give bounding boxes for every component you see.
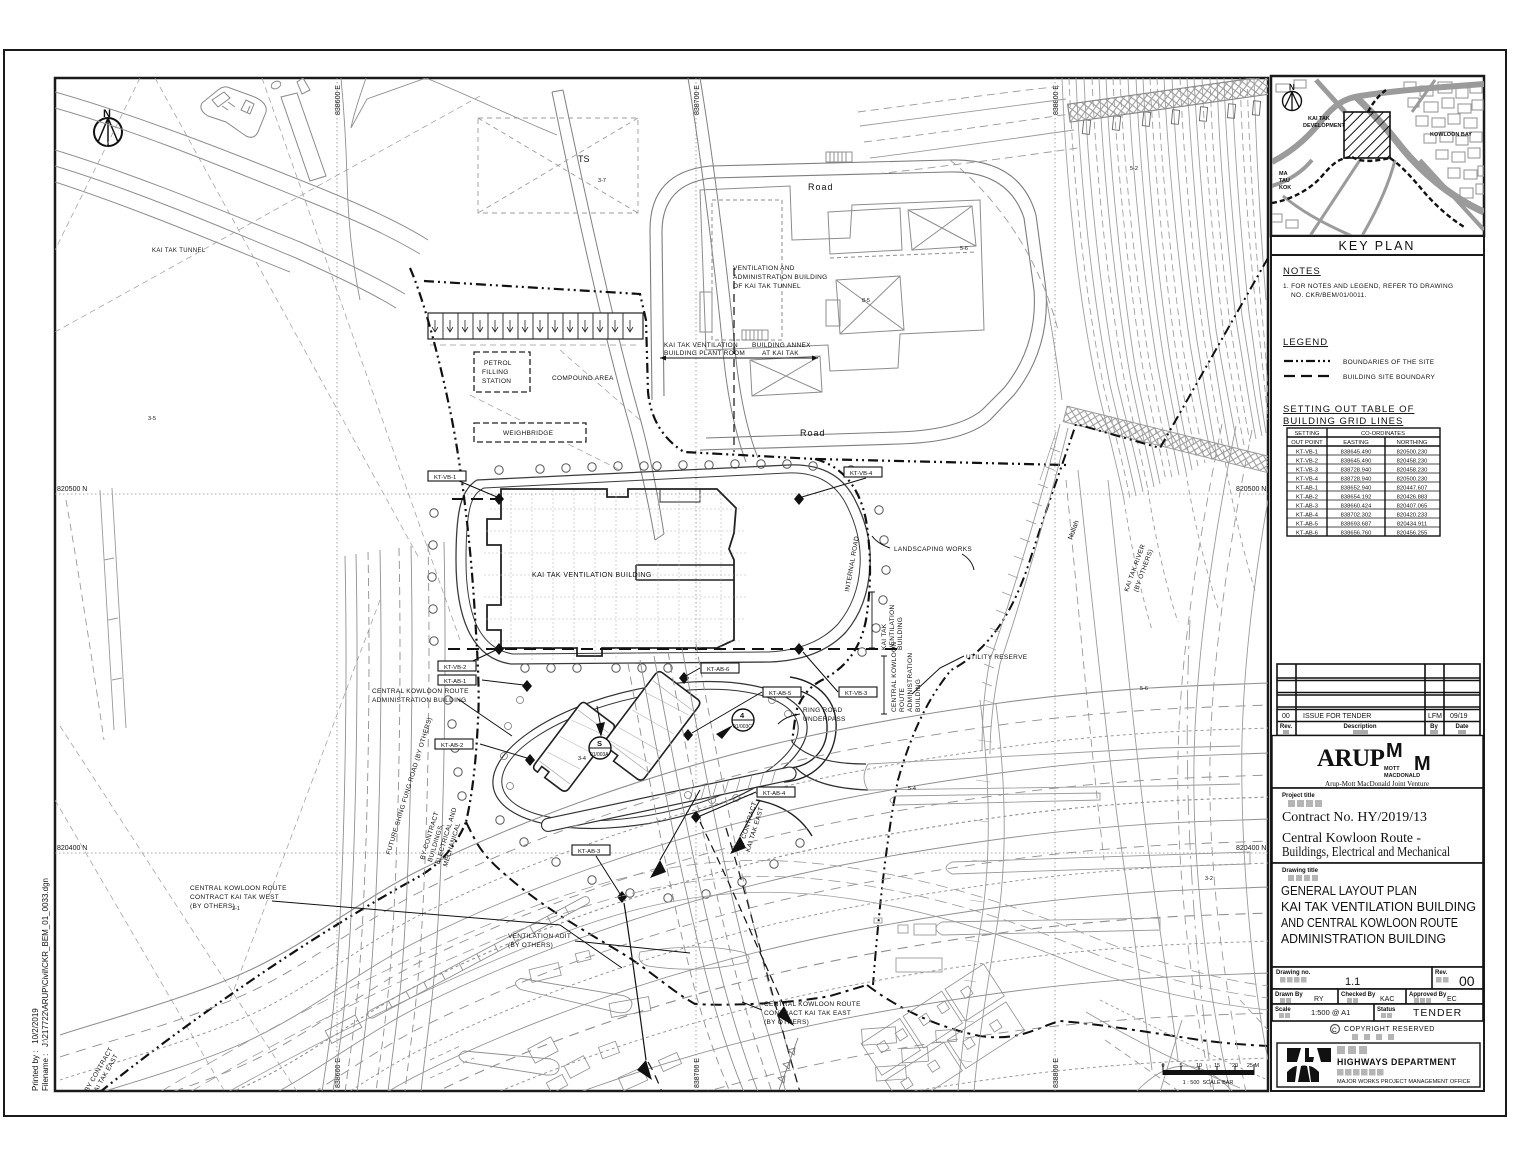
svg-text:KT-VB-4: KT-VB-4 [1296, 477, 1319, 483]
svg-text:01/003C: 01/003C [733, 724, 752, 730]
svg-text:CENTRAL KOWLOON ROUTE: CENTRAL KOWLOON ROUTE [764, 1001, 861, 1008]
svg-text:(BY OTHERS): (BY OTHERS) [508, 942, 553, 949]
svg-text:838728.940: 838728.940 [1341, 477, 1372, 483]
svg-text:VENTILATION AND: VENTILATION AND [733, 265, 795, 272]
svg-text:Rev.: Rev. [1435, 970, 1448, 976]
svg-text:Printed by : 10/2/2019: Printed by : 10/2/2019 [31, 1008, 40, 1091]
svg-text:RY: RY [1314, 996, 1324, 1003]
svg-text:CONTRACT KAI TAK WEST: CONTRACT KAI TAK WEST [190, 894, 279, 901]
svg-text:FILLING: FILLING [482, 369, 509, 376]
svg-text:1:500 @ A1: 1:500 @ A1 [1311, 1008, 1350, 1017]
svg-text:CO-ORDINATES: CO-ORDINATES [1361, 431, 1405, 437]
svg-text:KT-AB-1: KT-AB-1 [1296, 486, 1318, 492]
svg-text:TS: TS [578, 154, 590, 164]
svg-text:SETTING OUT TABLE OF: SETTING OUT TABLE OF [1283, 404, 1414, 415]
svg-text:Buildings, Electrical and Mech: Buildings, Electrical and Mechanical [1282, 844, 1450, 859]
svg-text:BUILDING: BUILDING [915, 679, 922, 712]
svg-text:820407.065: 820407.065 [1397, 504, 1428, 510]
svg-text:KT-VB-2: KT-VB-2 [444, 665, 466, 671]
svg-text:COMPOUND AREA: COMPOUND AREA [552, 375, 614, 382]
svg-text:OF KAI TAK TUNNEL: OF KAI TAK TUNNEL [733, 283, 801, 290]
svg-text:KT-AB-6: KT-AB-6 [707, 667, 730, 673]
svg-text:KT-AB-2: KT-AB-2 [1296, 495, 1318, 501]
svg-text:PETROL: PETROL [484, 360, 512, 367]
svg-text:KAI TAK VENTILATION BUILDING: KAI TAK VENTILATION BUILDING [1281, 900, 1476, 914]
svg-text:KAC: KAC [1380, 996, 1394, 1003]
svg-text:820458.230: 820458.230 [1397, 459, 1428, 465]
svg-text:09/19: 09/19 [1450, 713, 1468, 720]
svg-text:CENTRAL KOWLOON: CENTRAL KOWLOON [891, 642, 898, 712]
svg-text:GENERAL LAYOUT PLAN: GENERAL LAYOUT PLAN [1281, 884, 1417, 898]
svg-text:820500.230: 820500.230 [1397, 477, 1428, 483]
svg-text:KT-AB-5: KT-AB-5 [1296, 522, 1318, 528]
svg-text:820500.230: 820500.230 [1397, 450, 1428, 456]
svg-text:BOUNDARIES OF THE SITE: BOUNDARIES OF THE SITE [1343, 359, 1435, 366]
svg-text:(BY OTHERS): (BY OTHERS) [764, 1019, 809, 1026]
svg-text:KT-AB-3: KT-AB-3 [578, 849, 601, 855]
svg-text:LEGEND: LEGEND [1283, 337, 1328, 348]
svg-text:ROUTE: ROUTE [899, 687, 906, 712]
svg-text:KT-AB-2: KT-AB-2 [441, 743, 463, 749]
svg-text:Checked By: Checked By [1341, 992, 1376, 998]
svg-text:1.1: 1.1 [1345, 976, 1360, 988]
svg-text:N: N [103, 108, 111, 120]
svg-text:C: C [1332, 1027, 1337, 1034]
svg-text:KT-VB-2: KT-VB-2 [1296, 459, 1318, 465]
svg-text:Drawing title: Drawing title [1282, 868, 1319, 874]
svg-text:5-6: 5-6 [1140, 686, 1148, 692]
svg-text:AT KAI TAK: AT KAI TAK [762, 350, 799, 357]
svg-text:ADMINISTRATION BUILDING: ADMINISTRATION BUILDING [733, 274, 828, 281]
svg-text:838728.940: 838728.940 [1341, 468, 1372, 474]
svg-text:KAI TAK: KAI TAK [881, 623, 888, 650]
svg-text:MA: MA [1279, 171, 1288, 177]
svg-text:8-5: 8-5 [862, 298, 870, 304]
svg-text:BUILDING: BUILDING [897, 617, 904, 650]
svg-text:00: 00 [1459, 973, 1475, 989]
svg-text:KAI TAK VENTILATION: KAI TAK VENTILATION [664, 342, 738, 349]
svg-text:MACDONALD: MACDONALD [1384, 773, 1420, 779]
svg-text:KT-VB-1: KT-VB-1 [434, 475, 456, 481]
svg-text:820400 N: 820400 N [57, 845, 87, 852]
svg-text:BUILDING PLANT ROOM: BUILDING PLANT ROOM [664, 350, 745, 357]
svg-text:01/003A: 01/003A [590, 752, 609, 758]
svg-text:838800 E: 838800 E [1053, 1058, 1060, 1088]
svg-text:MAJOR WORKS PROJECT MANAGEMENT: MAJOR WORKS PROJECT MANAGEMENT OFFICE [1337, 1079, 1471, 1085]
svg-text:Contract No. HY/2019/13: Contract No. HY/2019/13 [1282, 810, 1427, 825]
svg-text:OUT POINT: OUT POINT [1291, 440, 1323, 446]
svg-text:WEIGHBRIDGE: WEIGHBRIDGE [503, 430, 554, 437]
svg-text:820456.255: 820456.255 [1397, 531, 1428, 537]
svg-text:BUILDING SITE BOUNDARY: BUILDING SITE BOUNDARY [1343, 374, 1435, 381]
svg-text:838700 E: 838700 E [694, 1058, 701, 1088]
svg-text:KOK: KOK [1279, 185, 1291, 191]
svg-text:820434.911: 820434.911 [1397, 522, 1427, 528]
svg-text:5-2: 5-2 [1130, 166, 1138, 172]
svg-text:STATION: STATION [482, 378, 511, 385]
svg-text:Status: Status [1377, 1007, 1396, 1013]
svg-text:KT-VB-3: KT-VB-3 [845, 691, 868, 697]
svg-text:M: M [1386, 740, 1403, 762]
svg-text:(BY OTHERS): (BY OTHERS) [190, 903, 235, 910]
svg-text:25 M: 25 M [1247, 1063, 1260, 1069]
svg-text:S: S [597, 739, 602, 748]
svg-text:Filename : J:\217722\ARUP\Ci: Filename : J:\217722\ARUP\Civil\CKR_BEM_… [41, 878, 50, 1091]
svg-text:838652.940: 838652.940 [1341, 486, 1372, 492]
svg-text:COPYRIGHT RESERVED: COPYRIGHT RESERVED [1344, 1026, 1435, 1033]
svg-text:ADMINISTRATION: ADMINISTRATION [907, 653, 914, 712]
svg-text:Road: Road [808, 182, 834, 192]
svg-text:Description: Description [1343, 724, 1376, 730]
svg-text:820500 N: 820500 N [57, 486, 87, 493]
svg-text:3-5: 3-5 [148, 416, 156, 422]
svg-text:EASTING: EASTING [1343, 440, 1369, 446]
svg-text:KT-AB-3: KT-AB-3 [1296, 504, 1318, 510]
svg-text:By: By [1430, 724, 1438, 730]
svg-text:KAI TAK: KAI TAK [1308, 116, 1330, 122]
svg-text:Drawing no.: Drawing no. [1276, 970, 1311, 976]
svg-text:KT-AB-6: KT-AB-6 [1296, 531, 1318, 537]
svg-text:1. FOR NOTES AND LEGEND, REFER: 1. FOR NOTES AND LEGEND, REFER TO DRAWIN… [1283, 283, 1453, 290]
svg-text:838693.687: 838693.687 [1341, 522, 1372, 528]
svg-text:Approved By: Approved By [1409, 992, 1447, 998]
svg-text:BUILDING ANNEX: BUILDING ANNEX [752, 342, 811, 349]
svg-text:CONTRACT KAI TAK EAST: CONTRACT KAI TAK EAST [764, 1010, 851, 1017]
svg-text:M: M [1414, 753, 1431, 775]
svg-text:Rev.: Rev. [1280, 724, 1293, 730]
svg-text:KT-VB-1: KT-VB-1 [1296, 450, 1318, 456]
svg-text:RING ROAD: RING ROAD [803, 707, 843, 714]
svg-text:838660.424: 838660.424 [1341, 504, 1372, 510]
svg-text:EC: EC [1447, 996, 1457, 1003]
svg-text:1 : 500 SCALE BAR: 1 : 500 SCALE BAR [1183, 1080, 1234, 1086]
svg-text:Road: Road [800, 428, 826, 438]
svg-text:5-6: 5-6 [960, 246, 968, 252]
svg-text:838656.760: 838656.760 [1341, 531, 1372, 537]
svg-text:ISSUE FOR TENDER: ISSUE FOR TENDER [1303, 713, 1371, 720]
svg-text:5-4: 5-4 [908, 786, 916, 792]
svg-text:KT-VB-4: KT-VB-4 [850, 471, 873, 477]
svg-text:ADMINISTRATION BUILDING: ADMINISTRATION BUILDING [1281, 932, 1446, 946]
svg-text:N: N [1289, 83, 1295, 92]
svg-text:TAU: TAU [1279, 178, 1290, 184]
svg-text:LANDSCAPING WORKS: LANDSCAPING WORKS [894, 546, 972, 553]
svg-text:Drawn By: Drawn By [1275, 992, 1303, 998]
svg-text:VENTILATION ADIT: VENTILATION ADIT [508, 933, 571, 940]
svg-text:AND CENTRAL KOWLOON ROUTE: AND CENTRAL KOWLOON ROUTE [1281, 916, 1458, 930]
svg-text:KT-AB-1: KT-AB-1 [444, 679, 466, 685]
svg-text:HIGHWAYS DEPARTMENT: HIGHWAYS DEPARTMENT [1337, 1057, 1457, 1067]
svg-text:838645.490: 838645.490 [1341, 459, 1372, 465]
svg-text:820447.607: 820447.607 [1397, 486, 1428, 492]
svg-text:ADMINISTRATION BUILDING: ADMINISTRATION BUILDING [372, 697, 467, 704]
svg-text:LFM: LFM [1428, 713, 1442, 720]
svg-text:3-2: 3-2 [1205, 876, 1213, 882]
svg-text:NO. CKR/BEM/01/0011.: NO. CKR/BEM/01/0011. [1291, 292, 1367, 299]
svg-text:Arup-Mott MacDonald Joint Vent: Arup-Mott MacDonald Joint Venture [1325, 780, 1429, 788]
svg-text:3-7: 3-7 [598, 178, 606, 184]
svg-text:Project title: Project title [1282, 793, 1315, 799]
svg-text:KT-VB-3: KT-VB-3 [1296, 468, 1318, 474]
svg-text:MOTT: MOTT [1384, 766, 1400, 772]
svg-text:838645.490: 838645.490 [1341, 450, 1372, 456]
svg-text:KAI TAK VENTILATION BUILDING: KAI TAK VENTILATION BUILDING [532, 572, 652, 579]
svg-text:TENDER: TENDER [1413, 1007, 1462, 1019]
svg-text:820400 N: 820400 N [1236, 845, 1266, 852]
svg-text:KT-AB-4: KT-AB-4 [763, 791, 786, 797]
svg-text:NORTHING: NORTHING [1397, 440, 1428, 446]
svg-text:DEVELOPMENT: DEVELOPMENT [1303, 123, 1346, 129]
svg-text:NOTES: NOTES [1283, 266, 1321, 277]
svg-text:838600 E: 838600 E [335, 85, 342, 115]
svg-text:838654.192: 838654.192 [1341, 495, 1372, 501]
svg-text:KOWLOON BAY: KOWLOON BAY [1430, 132, 1472, 138]
svg-text:3-1: 3-1 [232, 906, 240, 912]
svg-text:CENTRAL KOWLOON ROUTE: CENTRAL KOWLOON ROUTE [372, 688, 469, 695]
svg-text:BUILDING GRID LINES: BUILDING GRID LINES [1283, 416, 1403, 427]
svg-text:820458.230: 820458.230 [1397, 468, 1428, 474]
svg-text:CENTRAL KOWLOON ROUTE: CENTRAL KOWLOON ROUTE [190, 885, 287, 892]
svg-text:ARUP: ARUP [1317, 745, 1385, 772]
svg-text:838700 E: 838700 E [694, 85, 701, 115]
svg-text:00: 00 [1282, 713, 1290, 720]
svg-text:820426.883: 820426.883 [1397, 495, 1428, 501]
svg-text:KT-AB-4: KT-AB-4 [1296, 513, 1319, 519]
svg-text:820420.233: 820420.233 [1397, 513, 1428, 519]
svg-text:SETTING: SETTING [1294, 431, 1320, 437]
svg-text:838702.302: 838702.302 [1341, 513, 1372, 519]
svg-text:KT-AB-5: KT-AB-5 [769, 691, 792, 697]
svg-text:UTILITY RESERVE: UTILITY RESERVE [966, 654, 1028, 661]
svg-text:3-4: 3-4 [578, 756, 586, 762]
svg-text:Scale: Scale [1275, 1007, 1291, 1013]
svg-text:Date: Date [1455, 724, 1469, 730]
svg-text:KEY PLAN: KEY PLAN [1339, 239, 1416, 253]
svg-text:UNDERPASS: UNDERPASS [803, 716, 846, 723]
